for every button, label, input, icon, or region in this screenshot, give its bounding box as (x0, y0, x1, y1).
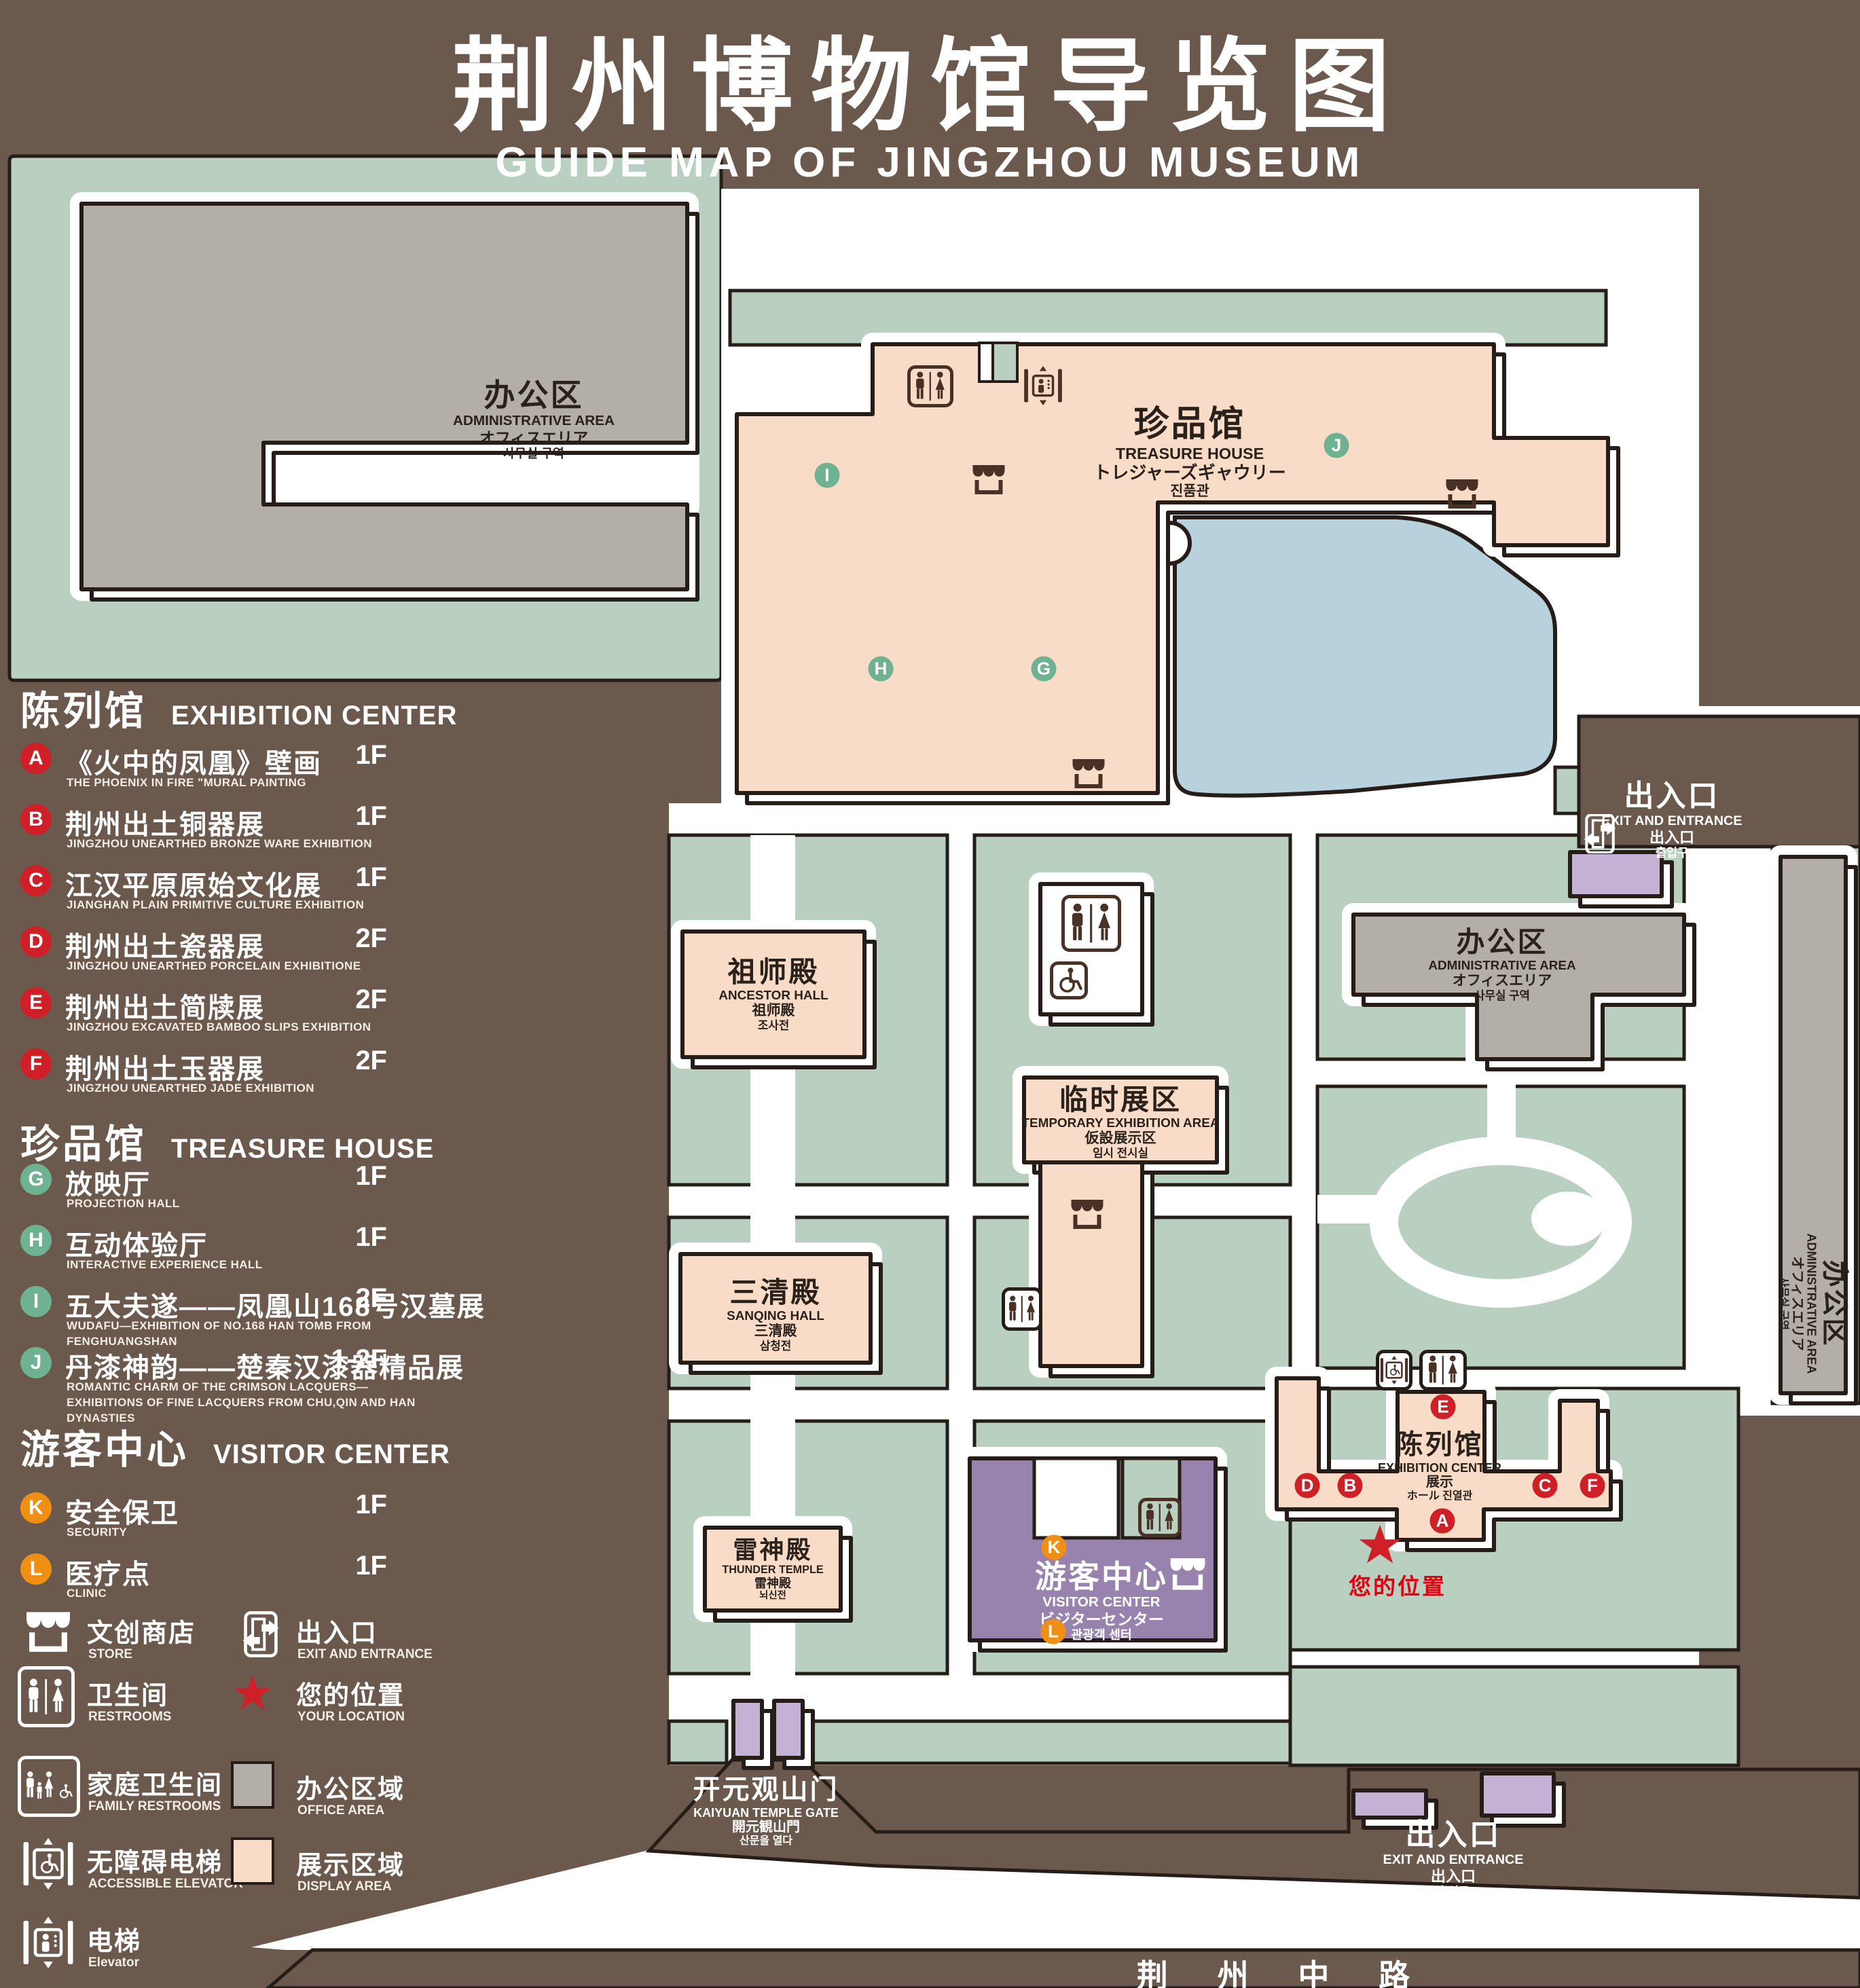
legend-item-floor: 1F (319, 740, 387, 771)
accessible-elevator-icon (19, 1832, 77, 1896)
legend-item-badge-B: B (20, 804, 52, 835)
elevator-icon (19, 1911, 77, 1974)
display-area-swatch (231, 1837, 274, 1885)
legend-symbol-title: 出入口 (296, 1612, 378, 1649)
legend-symbol-caption: Elevator (88, 1955, 139, 1970)
label-temporary-exhibition: 临时展区TEMPORARY EXHIBITION AREA 仮設展示区임시 전시… (1021, 1084, 1219, 1160)
legend-item-floor: 1F (319, 1490, 387, 1520)
legend-item-badge-H: H (20, 1225, 52, 1256)
label-treasure-house: 珍品馆TREASURE HOUSE トレジャーズギャウリー진품관 (1093, 405, 1285, 499)
legend-section-title-en: TREASURE HOUSE (171, 1134, 434, 1164)
building-south-gatehouse-1 (1353, 1790, 1426, 1818)
accessible-restroom-icon (1050, 961, 1088, 999)
legend-symbol-caption: ACCESSIBLE ELEVATOR (88, 1877, 243, 1892)
map-marker-C: C (1533, 1473, 1558, 1498)
label-admin-nw: 办公区ADMINISTRATIVE AREA オフィスエリア사무실 구역 (453, 378, 615, 461)
legend-section-header: 陈列馆EXHIBITION CENTER (20, 679, 458, 736)
legend-item-floor: 1F (319, 1222, 387, 1253)
legend-section-header: 游客中心VISITOR CENTER (20, 1418, 450, 1475)
legend-item-badge-D: D (20, 926, 52, 957)
legend-item-caption: JIANGHAN PLAIN PRIMITIVE CULTURE EXHIBIT… (67, 898, 420, 913)
store-icon (969, 464, 1008, 499)
store-icon (1167, 1557, 1209, 1595)
legend-symbol-caption: RESTROOMS (88, 1710, 171, 1725)
label-admin-east: 办公区ADMINISTRATIVE AREA オフィスエリア사무실 구역 (1776, 1234, 1849, 1374)
legend-item-caption: JINGZHOU UNEARTHED BRONZE WARE EXHIBITIO… (67, 836, 420, 852)
legend-item-floor: 1F (319, 1161, 387, 1192)
building-south-gatehouse-2 (1482, 1773, 1554, 1816)
legend-item-floor: 1F (319, 862, 387, 893)
exit-icon (235, 1605, 287, 1663)
label-kaiyuan-gate: 开元观山门KAIYUAN TEMPLE GATE 開元観山門산문을 열다 (693, 1775, 839, 1847)
label-south-exit: 出入口EXIT AND ENTRANCE 出入口출입구 (1383, 1818, 1524, 1898)
legend-item-caption: JINGZHOU UNEARTHED PORCELAIN EXHIBITIONE (67, 959, 420, 974)
legend-symbol-caption: OFFICE AREA (297, 1803, 384, 1818)
guide-map-poster: 荆州博物馆导览图 GUIDE MAP OF JINGZHOU MUSEUM 办公… (0, 0, 1860, 1988)
label-thunder-temple: 雷神殿THUNDER TEMPLE 雷神殿뇌신전 (722, 1536, 823, 1601)
restrooms-icon (1061, 895, 1121, 952)
legend-symbol-title: 文创商店 (87, 1612, 196, 1649)
legend-section-title-zh: 游客中心 (20, 1418, 189, 1475)
campus-map-canvas (0, 0, 1860, 1988)
legend-item-caption: INTERACTIVE EXPERIENCE HALL (67, 1257, 420, 1273)
legend-item-badge-F: F (20, 1048, 52, 1080)
legend-item-badge-G: G (20, 1164, 52, 1195)
store-icon (1069, 758, 1108, 793)
gate-pillar-west (733, 1701, 762, 1758)
legend-symbol-caption: YOUR LOCATION (297, 1710, 405, 1725)
legend-item-caption: PROJECTION HALL (67, 1196, 420, 1212)
legend-symbol-title: 无障碍电梯 (87, 1841, 223, 1879)
legend-item-floor: 1F (319, 1551, 387, 1581)
legend-symbol-caption: EXIT AND ENTRANCE (297, 1647, 433, 1662)
legend-symbol-title: 家庭卫生间 (87, 1764, 223, 1801)
office-area-swatch (231, 1761, 274, 1809)
label-ancestor-hall: 祖师殿ANCESTOR HALL 祖师殿조사전 (718, 956, 828, 1033)
label-admin-mid: 办公区ADMINISTRATIVE AREA オフィスエリア사무실 구역 (1428, 926, 1575, 1003)
legend-item-badge-K: K (20, 1492, 52, 1524)
gate-pillar-east (774, 1701, 803, 1758)
your-location-star-icon (1358, 1525, 1402, 1567)
page-title: 荆州博物馆导览图 (452, 4, 1408, 151)
legend-section-title-zh: 珍品馆 (20, 1112, 147, 1169)
your-location-label: 您的位置 (1349, 1568, 1446, 1601)
legend-item-caption: JINGZHOU EXCAVATED BAMBOO SLIPS EXHIBITI… (67, 1020, 420, 1035)
restrooms-icon (1138, 1498, 1182, 1537)
legend-section-title-en: VISITOR CENTER (213, 1439, 450, 1470)
label-east-exit: 出入口EXIT AND ENTRANCE 出入口출입구 (1602, 779, 1743, 860)
page-subtitle: GUIDE MAP OF JINGZHOU MUSEUM (496, 139, 1365, 187)
map-marker-E: E (1431, 1395, 1456, 1420)
store-icon (1442, 478, 1482, 513)
legend-symbol-title: 您的位置 (296, 1674, 405, 1712)
legend-section-title-en: EXHIBITION CENTER (171, 701, 457, 731)
map-marker-H: H (869, 657, 894, 682)
legend-symbol-caption: DISPLAY AREA (297, 1879, 392, 1894)
legend-item-floor: 2F (319, 1046, 387, 1076)
restrooms-icon (907, 365, 953, 407)
map-marker-G: G (1032, 657, 1057, 682)
label-sanqing-hall: 三清殿SANQING HALL 三清殿삼청전 (727, 1276, 824, 1353)
legend-item-floor: 2F (319, 1283, 387, 1314)
label-exhibition-center: 陈列馆EXHIBITION CENTER 展示ホール 진열관 (1378, 1430, 1501, 1503)
legend-item-badge-C: C (20, 865, 52, 896)
map-marker-D: D (1295, 1473, 1320, 1498)
legend-symbol-title: 卫生间 (87, 1674, 168, 1712)
legend-item-caption: THE PHOENIX IN FIRE "MURAL PAINTING (67, 775, 420, 791)
restrooms-icon (1002, 1287, 1042, 1331)
legend-item-caption: SECURITY (67, 1525, 420, 1541)
legend-symbol-caption: STORE (88, 1647, 132, 1662)
legend-item-floor: 1-2F (319, 1344, 387, 1375)
legend-item-badge-L: L (20, 1553, 52, 1585)
map-marker-J: J (1324, 433, 1349, 458)
elevator-icon (1023, 364, 1063, 407)
exit-icon (1580, 813, 1620, 854)
legend-item-badge-E: E (20, 987, 52, 1018)
legend-symbol-caption: FAMILY RESTROOMS (88, 1799, 221, 1814)
store-icon (20, 1608, 76, 1661)
restrooms-icon (1419, 1350, 1467, 1391)
legend-item-caption: CLINIC (67, 1586, 420, 1602)
legend-symbol-title: 办公区域 (296, 1768, 405, 1805)
map-marker-B: B (1338, 1473, 1363, 1498)
legend-item-badge-J: J (20, 1347, 52, 1378)
legend-item-floor: 2F (319, 984, 387, 1015)
map-marker-I: I (815, 463, 840, 488)
label-road: 荆 州 中 路 (1137, 1958, 1430, 1988)
legend-item-badge-A: A (20, 743, 52, 774)
legend-symbol-title: 电梯 (87, 1920, 141, 1957)
map-marker-L: L (1041, 1619, 1066, 1644)
accessible-elevator-icon (1376, 1350, 1412, 1391)
legend-item-floor: 2F (319, 923, 387, 954)
restrooms-icon (18, 1666, 75, 1727)
legend-section-title-zh: 陈列馆 (20, 679, 147, 736)
store-icon (1068, 1198, 1107, 1234)
road (268, 1950, 1860, 1988)
legend-symbol-title: 展示区域 (296, 1844, 405, 1881)
location-star-icon (230, 1672, 276, 1716)
legend-item-badge-I: I (20, 1286, 52, 1317)
map-marker-F: F (1580, 1473, 1605, 1498)
family-restrooms-icon (18, 1756, 80, 1817)
map-marker-K: K (1042, 1535, 1067, 1560)
map-marker-A: A (1430, 1509, 1455, 1534)
legend-item-caption: JINGZHOU UNEARTHED JADE EXHIBITION (67, 1081, 420, 1097)
legend-item-floor: 1F (319, 801, 387, 832)
